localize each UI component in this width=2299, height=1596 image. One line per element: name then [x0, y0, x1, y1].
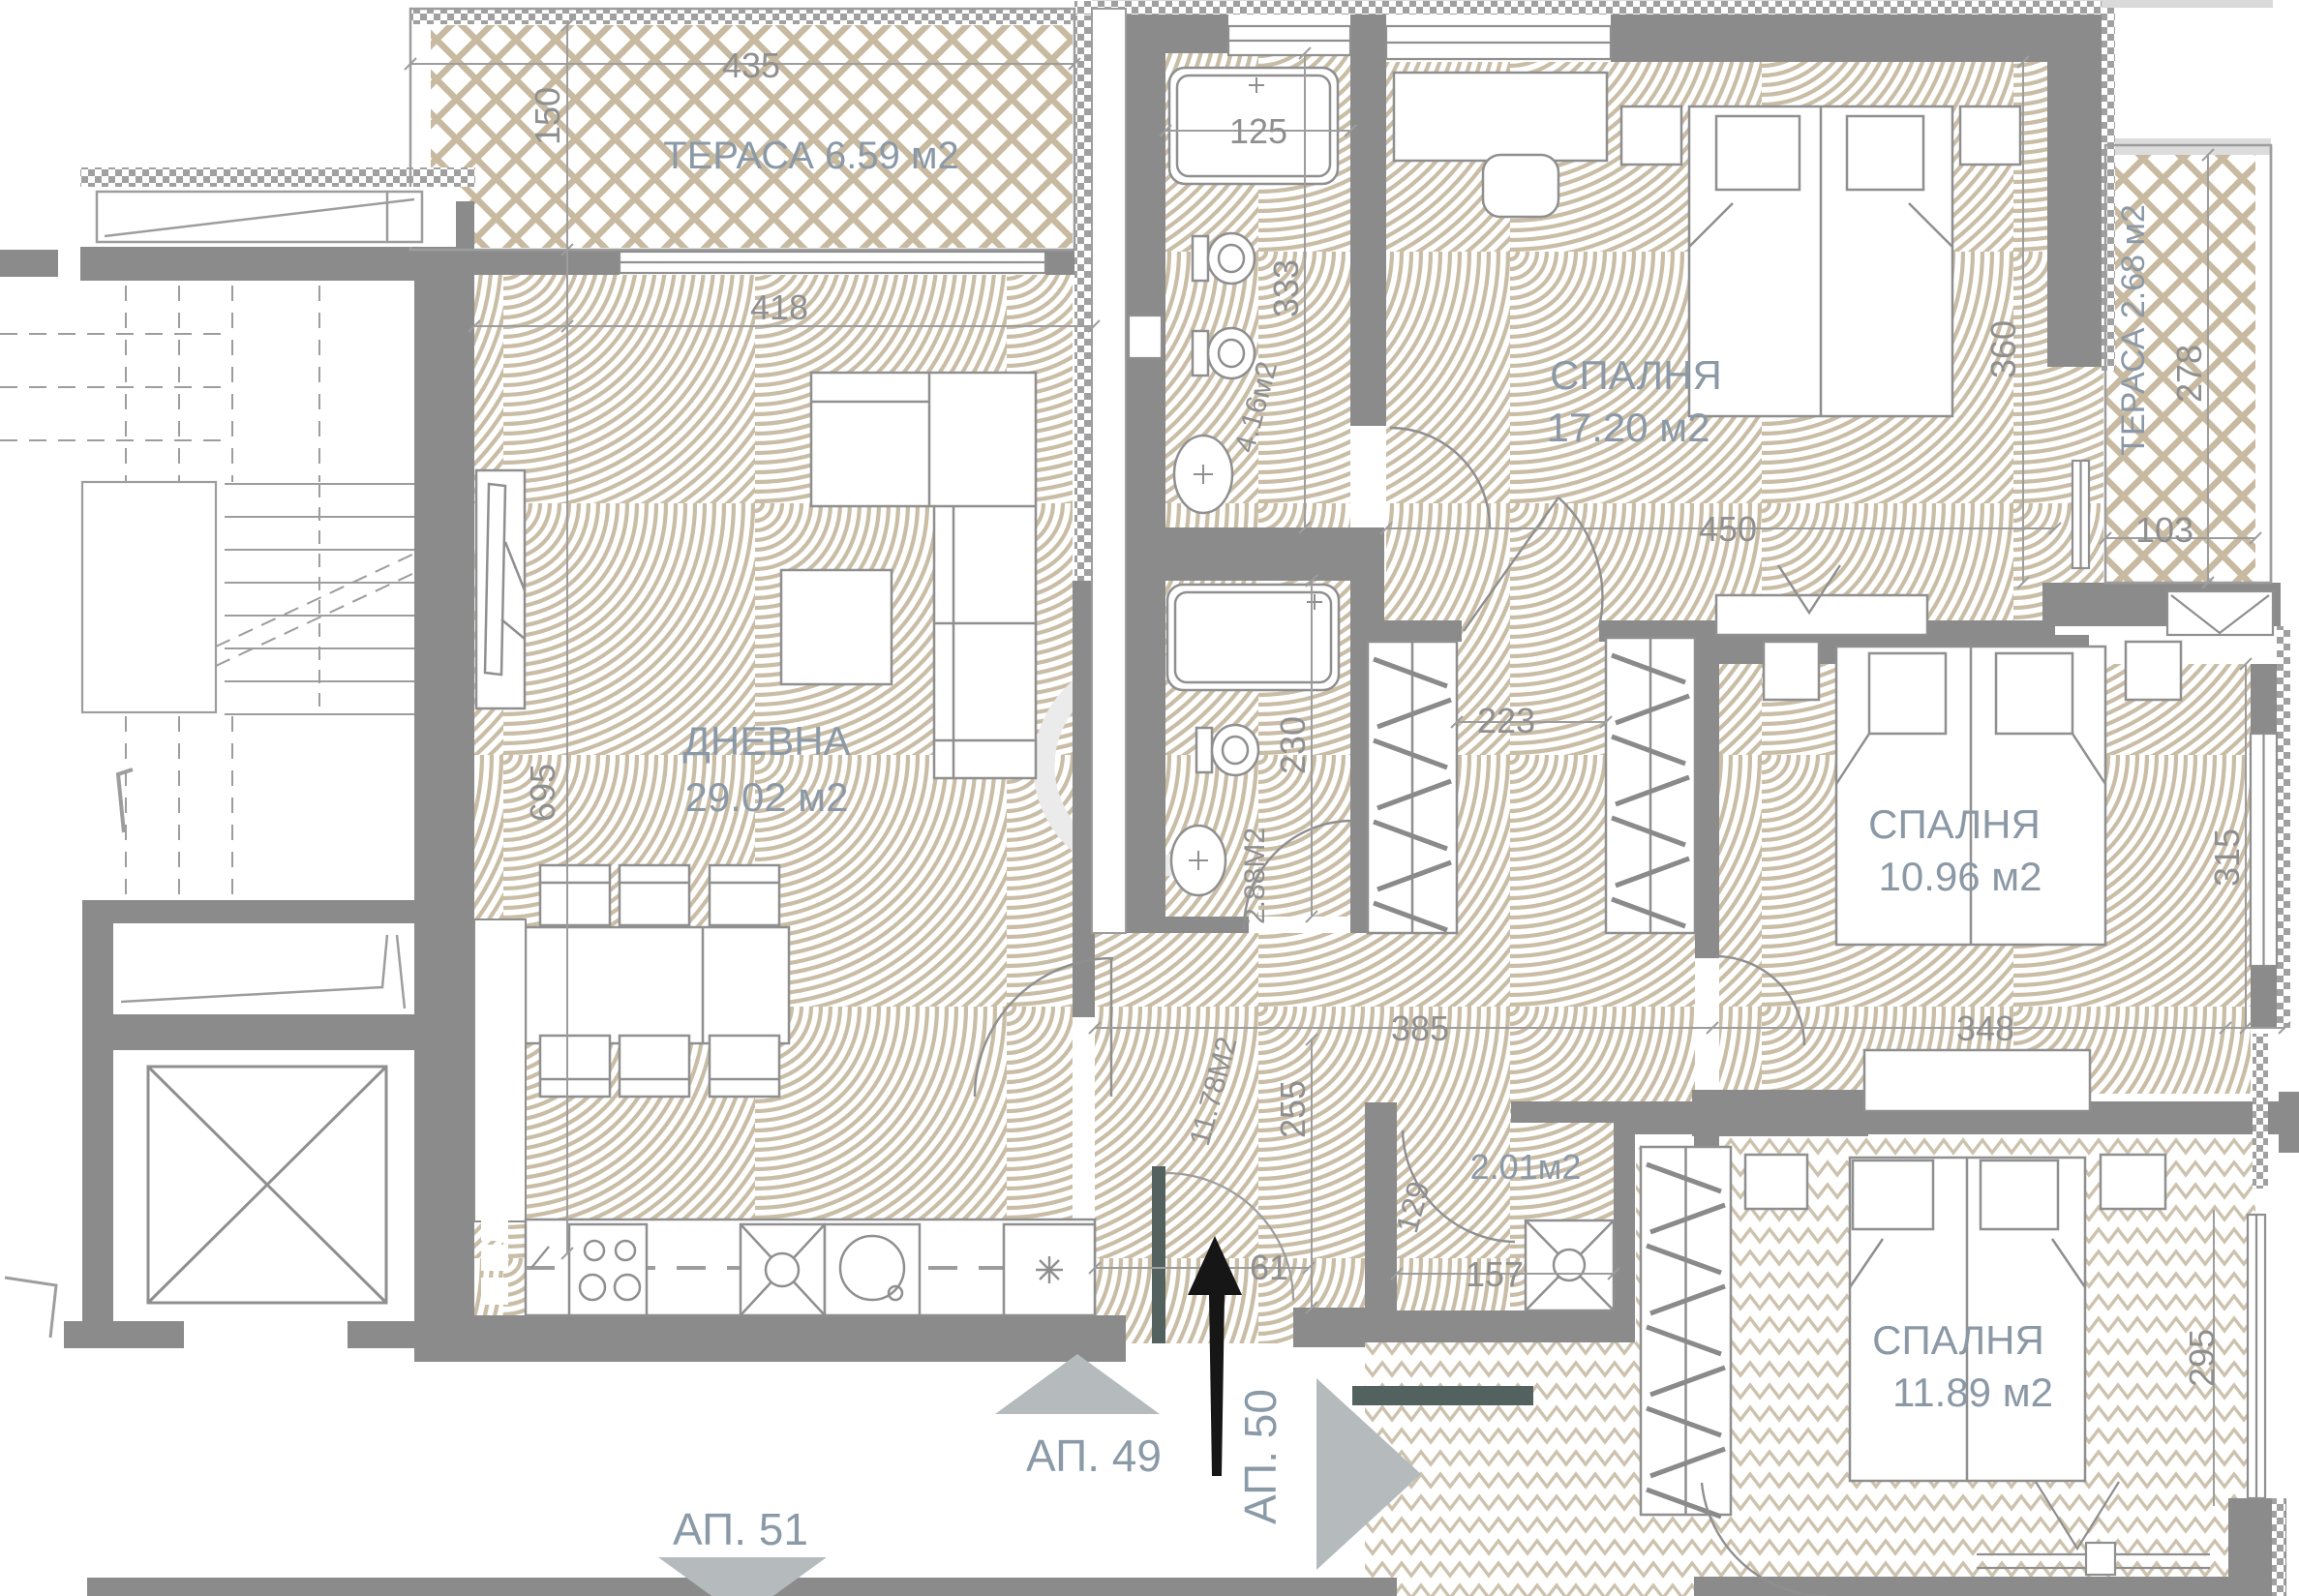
svg-text:230: 230	[1273, 716, 1313, 774]
svg-text:150: 150	[528, 87, 567, 145]
svg-text:29.02 м2: 29.02 м2	[684, 774, 848, 820]
svg-text:АП. 49: АП. 49	[1026, 1430, 1162, 1481]
svg-text:255: 255	[1273, 1080, 1313, 1138]
svg-text:157: 157	[1466, 1254, 1524, 1294]
svg-text:ТЕРАСА 2.68 м2: ТЕРАСА 2.68 м2	[2115, 204, 2152, 456]
svg-text:435: 435	[722, 45, 780, 85]
svg-text:418: 418	[750, 287, 808, 327]
svg-text:10.96 м2: 10.96 м2	[1878, 854, 2042, 899]
svg-text:333: 333	[1266, 259, 1306, 317]
svg-text:278: 278	[2169, 345, 2209, 403]
svg-text:ТЕРАСА 6.59 м2: ТЕРАСА 6.59 м2	[663, 135, 958, 177]
svg-text:2.01м2: 2.01м2	[1470, 1147, 1582, 1187]
svg-text:СПАЛНЯ: СПАЛНЯ	[1868, 801, 2041, 847]
svg-text:695: 695	[523, 764, 562, 822]
svg-text:2.88М2: 2.88М2	[1239, 828, 1271, 924]
svg-text:315: 315	[2207, 828, 2247, 887]
svg-text:360: 360	[1983, 320, 2023, 378]
svg-text:АП. 51: АП. 51	[673, 1504, 808, 1554]
svg-text:348: 348	[1956, 1009, 2014, 1048]
svg-text:61: 61	[1250, 1248, 1288, 1287]
svg-text:СПАЛНЯ: СПАЛНЯ	[1550, 352, 1722, 398]
svg-text:103: 103	[2135, 510, 2193, 550]
svg-text:17.20 м2: 17.20 м2	[1546, 405, 1709, 450]
svg-text:295: 295	[2182, 1329, 2222, 1387]
svg-text:223: 223	[1477, 701, 1535, 740]
svg-text:СПАЛНЯ: СПАЛНЯ	[1872, 1317, 2044, 1363]
svg-text:ДНЕВНА: ДНЕВНА	[682, 718, 850, 764]
svg-text:450: 450	[1699, 509, 1757, 549]
svg-text:АП. 50: АП. 50	[1235, 1389, 1286, 1524]
svg-text:125: 125	[1229, 111, 1287, 151]
svg-text:11.89 м2: 11.89 м2	[1892, 1370, 2053, 1415]
svg-text:385: 385	[1391, 1009, 1449, 1048]
